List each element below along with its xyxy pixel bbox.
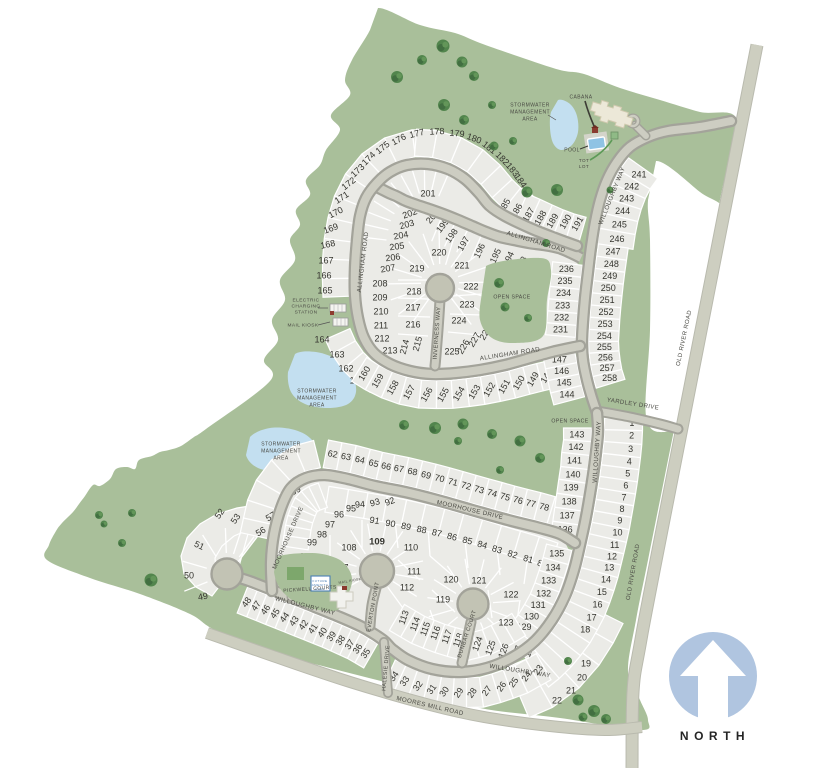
svg-text:14: 14 [601, 575, 611, 585]
svg-text:95: 95 [346, 503, 356, 513]
svg-text:AREA: AREA [522, 116, 537, 122]
svg-text:245: 245 [612, 220, 627, 230]
svg-text:141: 141 [567, 455, 582, 465]
svg-text:252: 252 [598, 307, 613, 317]
svg-text:91: 91 [369, 515, 381, 527]
svg-text:AREA: AREA [309, 402, 324, 408]
svg-text:MANAGEMENT: MANAGEMENT [297, 395, 337, 401]
svg-text:5: 5 [625, 468, 630, 478]
svg-text:241: 241 [631, 169, 646, 179]
svg-text:145: 145 [557, 377, 572, 387]
svg-text:217: 217 [405, 302, 420, 312]
svg-text:STORMWATER: STORMWATER [261, 441, 300, 447]
svg-text:222: 222 [463, 281, 478, 291]
svg-text:139: 139 [564, 482, 579, 492]
svg-text:MANAGEMENT: MANAGEMENT [261, 448, 301, 454]
svg-text:178: 178 [429, 126, 445, 137]
svg-text:137: 137 [560, 510, 575, 520]
svg-text:224: 224 [451, 315, 466, 325]
svg-text:243: 243 [619, 193, 634, 203]
svg-text:258: 258 [602, 373, 617, 383]
svg-text:140: 140 [565, 469, 580, 479]
svg-text:109: 109 [369, 537, 385, 548]
svg-text:ELECTRIC: ELECTRIC [293, 297, 320, 303]
svg-text:MANAGEMENT: MANAGEMENT [510, 109, 550, 115]
svg-text:99: 99 [307, 537, 317, 547]
svg-text:164: 164 [314, 334, 329, 344]
svg-text:120: 120 [443, 574, 458, 584]
svg-text:146: 146 [554, 366, 569, 376]
svg-text:244: 244 [615, 206, 630, 216]
svg-text:119: 119 [436, 594, 450, 604]
svg-text:235: 235 [557, 276, 572, 286]
svg-text:211: 211 [374, 320, 388, 330]
svg-text:OPEN SPACE: OPEN SPACE [551, 418, 588, 424]
svg-text:CABANA: CABANA [570, 94, 593, 100]
svg-text:234: 234 [556, 288, 571, 298]
svg-text:3: 3 [628, 444, 633, 454]
svg-text:143: 143 [569, 429, 584, 439]
svg-text:133: 133 [541, 575, 556, 585]
svg-text:STORMWATER: STORMWATER [510, 102, 549, 108]
svg-text:166: 166 [316, 270, 331, 280]
svg-text:67: 67 [393, 463, 405, 475]
svg-text:96: 96 [334, 509, 344, 519]
svg-text:165: 165 [317, 285, 332, 295]
svg-text:9: 9 [617, 516, 622, 526]
svg-text:88: 88 [416, 524, 428, 536]
svg-text:90: 90 [385, 518, 397, 530]
svg-text:89: 89 [400, 521, 412, 533]
svg-text:205: 205 [389, 240, 405, 252]
svg-text:130: 130 [524, 611, 539, 621]
svg-text:OPEN SPACE: OPEN SPACE [493, 294, 530, 300]
svg-text:11: 11 [610, 540, 619, 550]
svg-text:233: 233 [555, 300, 570, 310]
svg-text:250: 250 [601, 283, 616, 293]
svg-text:179: 179 [449, 128, 465, 140]
svg-text:112: 112 [400, 582, 414, 592]
svg-text:131: 131 [531, 600, 546, 610]
svg-text:16: 16 [592, 599, 602, 609]
svg-text:MAIL KIOSK: MAIL KIOSK [287, 322, 318, 328]
svg-text:68: 68 [407, 466, 419, 478]
svg-text:50: 50 [184, 570, 194, 580]
svg-text:15: 15 [597, 587, 607, 597]
svg-text:248: 248 [604, 259, 619, 269]
svg-text:223: 223 [459, 299, 474, 309]
svg-text:135: 135 [549, 549, 564, 559]
svg-text:62: 62 [327, 448, 339, 460]
svg-text:6: 6 [623, 480, 628, 490]
svg-text:111: 111 [407, 566, 421, 576]
svg-text:LOT: LOT [579, 164, 589, 169]
svg-text:219: 219 [409, 263, 424, 273]
svg-text:257: 257 [600, 363, 615, 373]
svg-text:TOT: TOT [579, 158, 589, 163]
svg-text:255: 255 [597, 342, 612, 352]
svg-text:STATION: STATION [295, 309, 318, 315]
svg-text:122: 122 [503, 589, 518, 599]
svg-text:98: 98 [317, 529, 327, 539]
svg-text:97: 97 [325, 519, 335, 529]
svg-text:247: 247 [605, 246, 620, 256]
svg-text:49: 49 [197, 591, 209, 603]
svg-text:251: 251 [600, 295, 615, 305]
svg-text:94: 94 [355, 499, 366, 510]
svg-text:AREA: AREA [273, 455, 288, 461]
svg-text:138: 138 [562, 496, 577, 506]
svg-text:231: 231 [553, 324, 568, 334]
svg-text:201: 201 [420, 188, 435, 198]
svg-text:254: 254 [597, 331, 612, 341]
svg-text:17: 17 [587, 612, 597, 622]
svg-text:CHARGING: CHARGING [291, 303, 320, 309]
svg-text:212: 212 [374, 333, 389, 343]
svg-text:108: 108 [341, 542, 356, 552]
svg-text:209: 209 [372, 292, 387, 302]
svg-text:121: 121 [471, 575, 486, 585]
svg-text:167: 167 [318, 255, 333, 265]
svg-text:246: 246 [609, 234, 624, 244]
svg-text:19: 19 [581, 658, 591, 668]
svg-text:63: 63 [340, 451, 352, 463]
svg-text:10: 10 [612, 528, 622, 538]
svg-text:144: 144 [559, 389, 574, 399]
svg-text:162: 162 [338, 363, 353, 373]
svg-text:221: 221 [454, 260, 469, 270]
svg-text:110: 110 [404, 542, 418, 552]
svg-text:256: 256 [598, 352, 613, 362]
svg-text:123: 123 [498, 617, 513, 627]
svg-text:210: 210 [373, 306, 388, 316]
svg-text:STORMWATER: STORMWATER [297, 388, 336, 394]
svg-text:253: 253 [598, 319, 613, 329]
svg-text:220: 220 [431, 247, 446, 257]
svg-text:NORTH: NORTH [680, 729, 750, 743]
svg-text:12: 12 [607, 551, 617, 561]
svg-text:4: 4 [627, 456, 632, 466]
svg-text:18: 18 [580, 624, 590, 634]
svg-text:2: 2 [629, 430, 634, 440]
svg-text:163: 163 [329, 349, 344, 359]
svg-text:7: 7 [621, 492, 626, 502]
svg-text:POOL: POOL [564, 147, 580, 153]
svg-text:132: 132 [536, 588, 551, 598]
svg-text:208: 208 [372, 278, 387, 288]
svg-text:142: 142 [568, 442, 583, 452]
svg-text:218: 218 [406, 286, 421, 296]
svg-text:242: 242 [624, 182, 639, 192]
svg-text:216: 216 [405, 319, 420, 329]
svg-text:20: 20 [577, 672, 587, 682]
svg-text:236: 236 [559, 264, 574, 274]
svg-text:249: 249 [602, 271, 617, 281]
svg-text:13: 13 [604, 563, 614, 573]
svg-text:22: 22 [552, 695, 562, 705]
svg-text:134: 134 [545, 562, 560, 572]
svg-text:232: 232 [554, 312, 569, 322]
svg-text:21: 21 [566, 685, 576, 695]
svg-text:8: 8 [619, 504, 624, 514]
